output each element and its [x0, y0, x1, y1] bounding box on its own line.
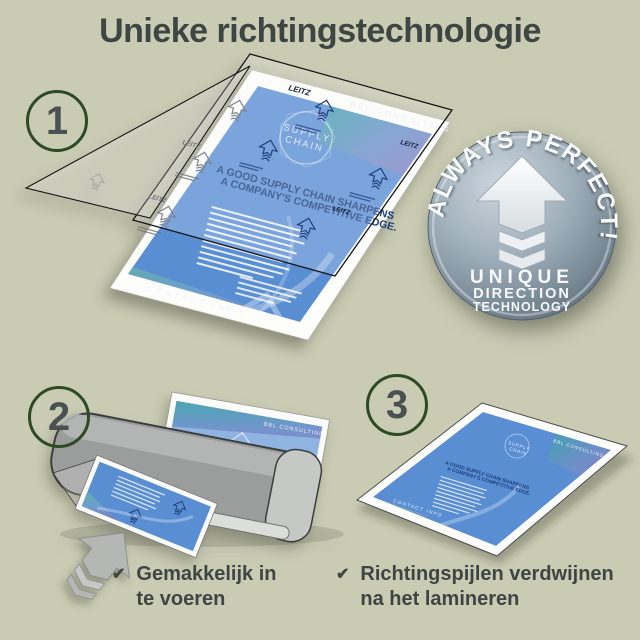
step-1-number: 1: [46, 99, 68, 144]
check-icon: ✔: [112, 562, 125, 612]
benefit-easy-feeding: ✔ Gemakkelijk in te voeren: [112, 562, 276, 612]
page-title: Unieke richtingstechnologie: [0, 12, 640, 51]
benefit-arrows-disappear: ✔ Richtingspijlen verdwijnen na het lami…: [336, 562, 614, 612]
benefit-1-line-2: te voeren: [136, 587, 276, 612]
badge-line1: UNIQUE: [470, 267, 574, 288]
benefit-1-line-1: Gemakkelijk in: [136, 562, 276, 587]
always-perfect-badge: ALWAYS PERFECT! UNIQUE DIRECTION TECHNOL…: [424, 128, 620, 324]
step-2-number: 2: [48, 395, 70, 440]
step-2-marker: 2: [28, 386, 90, 448]
step-3-number: 3: [386, 383, 408, 428]
badge-line3: TECHNOLOGY: [473, 300, 571, 314]
benefit-2-line-2: na het lamineren: [360, 587, 613, 612]
product-infographic: Unieke richtingstechnologie: [0, 0, 640, 640]
step-1-marker: 1: [26, 90, 88, 152]
step-3-marker: 3: [366, 374, 428, 436]
benefit-2-line-1: Richtingspijlen verdwijnen: [360, 562, 613, 587]
check-icon: ✔: [336, 562, 349, 612]
